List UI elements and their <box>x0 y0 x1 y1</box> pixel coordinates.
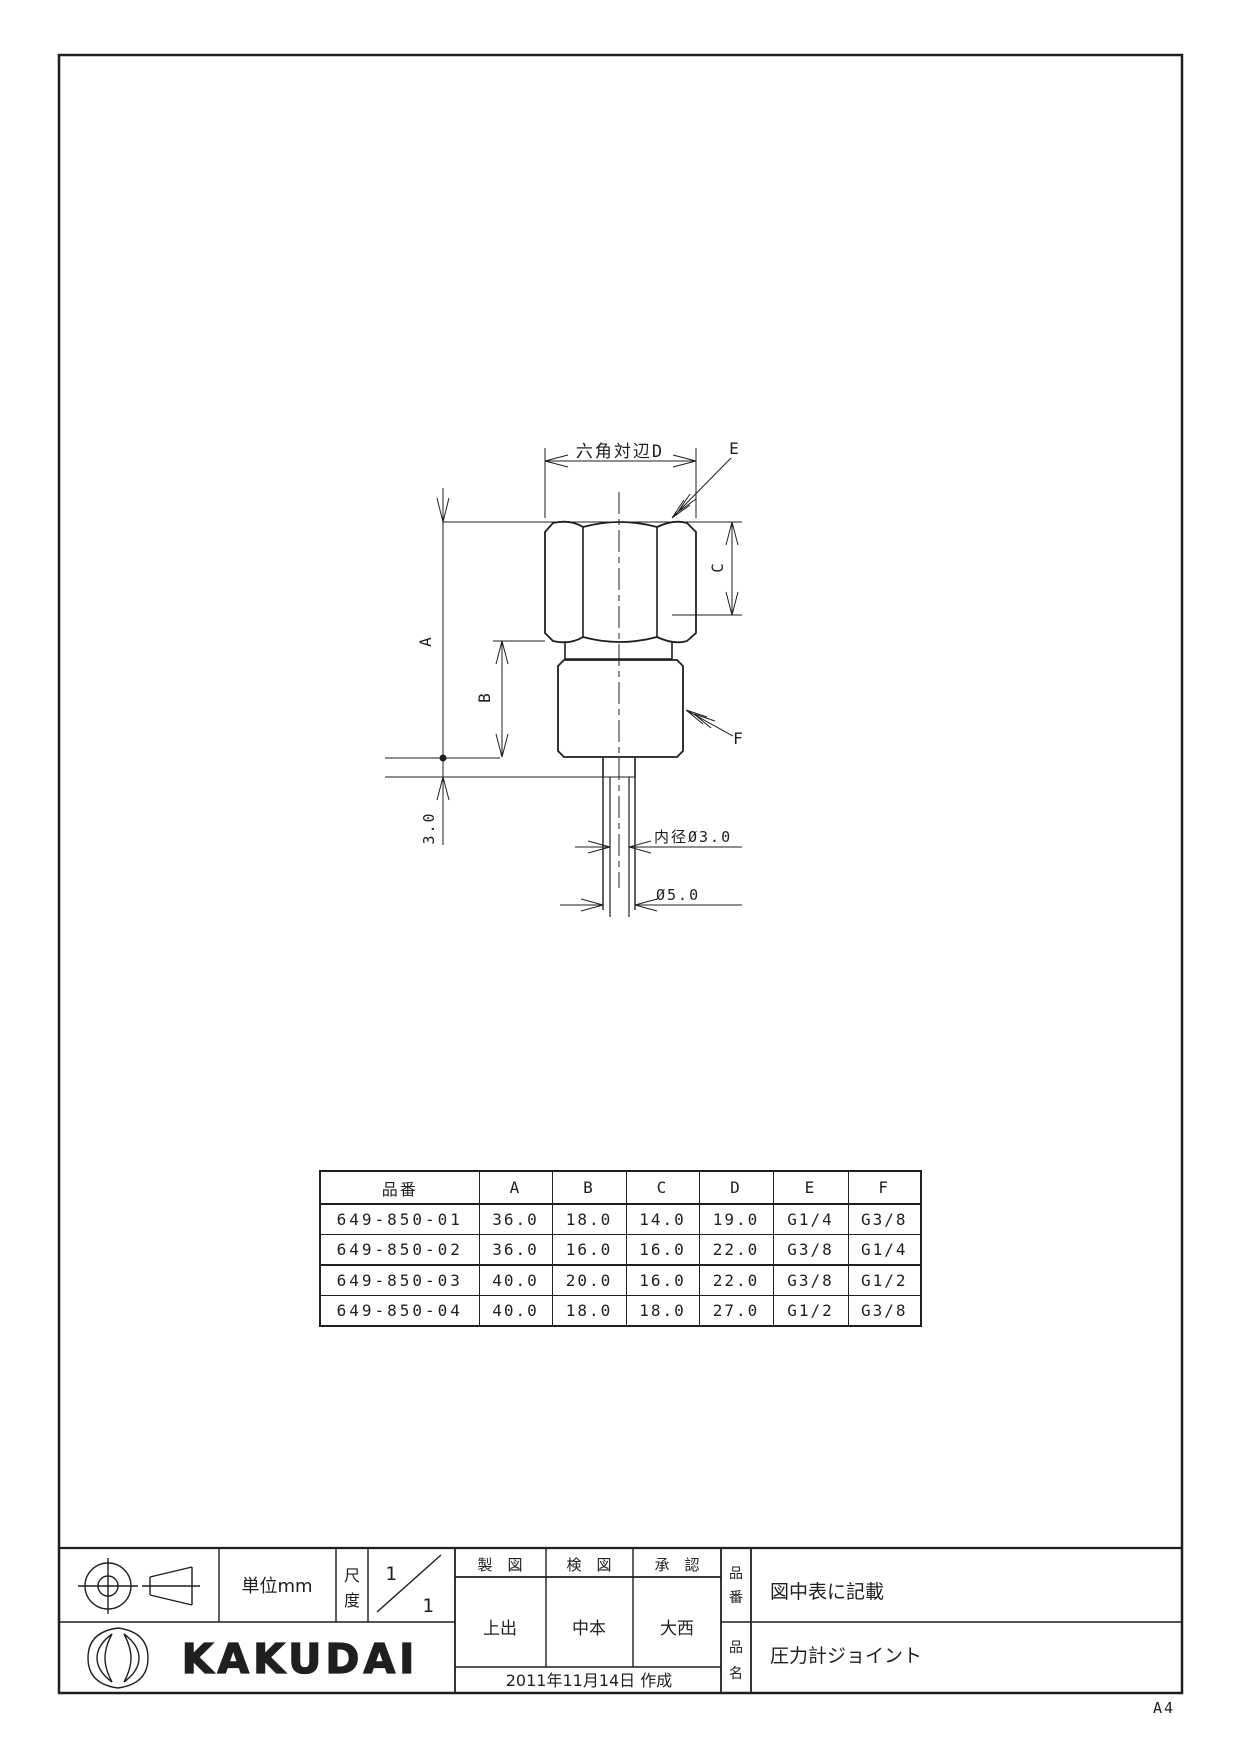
table-cell: 16.0 <box>626 1235 699 1266</box>
scale-label-top: 尺 <box>344 1566 360 1585</box>
leader-lines <box>672 458 733 736</box>
hex-face-ridges <box>583 527 657 637</box>
company-logo: KAKUDAI <box>88 1628 418 1688</box>
table-cell-part-no: 649-850-03 <box>320 1265 479 1296</box>
part-drawing <box>385 448 742 917</box>
table-header-e: E <box>773 1171 848 1204</box>
table-row: 649-850-04 40.0 18.0 18.0 27.0 G1/2 G3/8 <box>320 1296 921 1327</box>
table-cell: G1/2 <box>848 1265 921 1296</box>
kakudai-logotype: KAKUDAI <box>182 1635 419 1683</box>
a-dimension-dot <box>440 755 447 762</box>
table-cell: 18.0 <box>552 1296 626 1327</box>
table-cell: 22.0 <box>699 1235 773 1266</box>
part-name-value: 圧力計ジョイント <box>770 1645 922 1667</box>
table-cell: G3/8 <box>773 1235 848 1266</box>
part-name-label-bottom: 名 <box>729 1666 743 1682</box>
creation-date: 2011年11月14日 作成 <box>506 1671 673 1690</box>
approve-header: 承 認 <box>654 1556 699 1574</box>
width-across-flats-label: 六角対辺D <box>576 442 664 462</box>
table-cell: 27.0 <box>699 1296 773 1327</box>
part-no-label-bottom: 番 <box>729 1590 743 1606</box>
extension-lines <box>385 448 742 777</box>
e-leader <box>672 458 731 518</box>
table-cell: 22.0 <box>699 1265 773 1296</box>
approver-name: 大西 <box>660 1619 694 1639</box>
dim-3-label: 3.0 <box>420 811 438 844</box>
scale-label-bottom: 度 <box>344 1591 360 1610</box>
table-cell: 40.0 <box>479 1265 552 1296</box>
check-header: 検 図 <box>566 1556 611 1574</box>
dim-a-label: A <box>416 635 435 647</box>
table-cell: 40.0 <box>479 1296 552 1327</box>
threaded-body-outline <box>558 660 683 757</box>
dim-f-label: F <box>733 729 745 748</box>
table-cell: 14.0 <box>626 1204 699 1235</box>
unit-label: 単位mm <box>241 1576 312 1597</box>
table-cell-part-no: 649-850-04 <box>320 1296 479 1327</box>
kakudai-mark-icon <box>88 1628 148 1688</box>
table-header-f: F <box>848 1171 921 1204</box>
hex-nut-outline <box>545 522 696 643</box>
table-cell: 18.0 <box>552 1204 626 1235</box>
part-no-label-top: 品 <box>729 1566 743 1582</box>
table-header-a: A <box>479 1171 552 1204</box>
table-header-d: D <box>699 1171 773 1204</box>
dim-b-label: B <box>475 691 494 703</box>
projection-symbol-icon <box>78 1558 200 1614</box>
draft-header: 製 図 <box>477 1556 522 1574</box>
table-cell: G3/8 <box>848 1204 921 1235</box>
outer-diameter-label: Ø5.0 <box>656 886 700 904</box>
scale-numerator: 1 <box>385 1563 398 1585</box>
table-cell: 16.0 <box>626 1265 699 1296</box>
inner-diameter-label: 内径Ø3.0 <box>654 828 732 846</box>
table-cell: 20.0 <box>552 1265 626 1296</box>
table-cell: 16.0 <box>552 1235 626 1266</box>
table-header-row: 品番 A B C D E F <box>320 1171 921 1204</box>
table-cell: 18.0 <box>626 1296 699 1327</box>
projection-crosshair <box>78 1558 138 1614</box>
drafter-name: 上出 <box>483 1619 517 1639</box>
table-row: 649-850-02 36.0 16.0 16.0 22.0 G3/8 G1/4 <box>320 1235 921 1266</box>
part-name-label-top: 品 <box>729 1640 743 1656</box>
sheet-border-frame <box>59 55 1182 1693</box>
dim-e-label: E <box>729 439 741 458</box>
checker-name: 中本 <box>572 1619 606 1639</box>
table-cell: G1/2 <box>773 1296 848 1327</box>
drawing-sheet: 六角対辺D E A B C 3.0 F 内径Ø3.0 Ø5.0 <box>0 0 1240 1754</box>
table-header-c: C <box>626 1171 699 1204</box>
table-cell-part-no: 649-850-02 <box>320 1235 479 1266</box>
table-cell: 36.0 <box>479 1204 552 1235</box>
drawing-labels: 六角対辺D E A B C 3.0 F 内径Ø3.0 Ø5.0 <box>416 439 745 904</box>
table-cell-part-no: 649-850-01 <box>320 1204 479 1235</box>
table-row: 649-850-01 36.0 18.0 14.0 19.0 G1/4 G3/8 <box>320 1204 921 1235</box>
dimension-table: 品番 A B C D E F 649-850-01 36.0 18.0 14.0… <box>319 1170 922 1327</box>
table-cell: 36.0 <box>479 1235 552 1266</box>
scale-denominator: 1 <box>422 1595 435 1617</box>
paper-size-label: A4 <box>1153 1699 1175 1717</box>
table-cell: 19.0 <box>699 1204 773 1235</box>
table-header-b: B <box>552 1171 626 1204</box>
table-cell: G3/8 <box>773 1265 848 1296</box>
dim-c-label: C <box>708 561 727 573</box>
table-cell: G1/4 <box>848 1235 921 1266</box>
part-no-value: 図中表に記載 <box>770 1581 884 1603</box>
table-row: 649-850-03 40.0 20.0 16.0 22.0 G3/8 G1/2 <box>320 1265 921 1296</box>
table-header-part-no: 品番 <box>320 1171 479 1204</box>
f-leader <box>686 710 733 736</box>
table-cell: G3/8 <box>848 1296 921 1327</box>
projection-cone <box>142 1567 200 1605</box>
table-cell: G1/4 <box>773 1204 848 1235</box>
drawing-canvas: 六角対辺D E A B C 3.0 F 内径Ø3.0 Ø5.0 <box>0 0 1240 1754</box>
